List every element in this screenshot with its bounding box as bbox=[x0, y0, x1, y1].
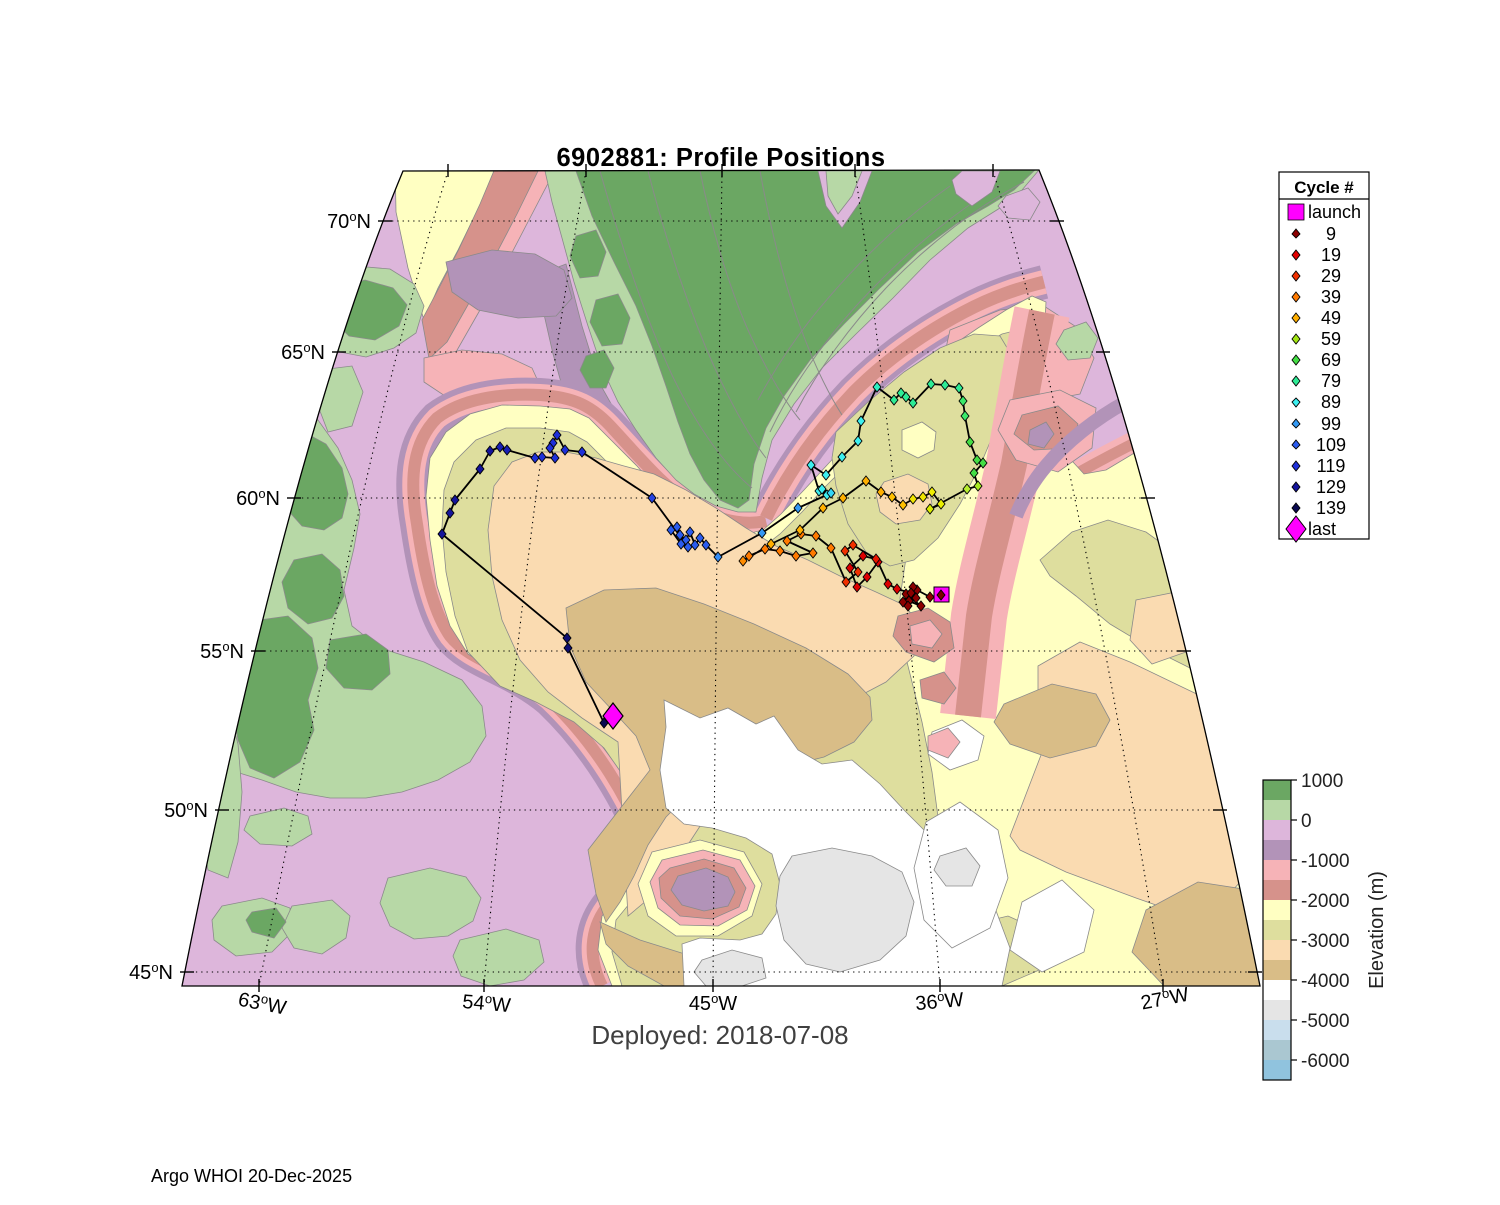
svg-text:69: 69 bbox=[1321, 350, 1341, 370]
svg-text:-6000: -6000 bbox=[1301, 1051, 1350, 1072]
svg-text:-2000: -2000 bbox=[1301, 891, 1350, 912]
svg-text:Deployed: 2018-07-08: Deployed: 2018-07-08 bbox=[591, 1020, 848, 1050]
svg-text:55oN: 55oN bbox=[200, 639, 244, 663]
svg-text:Cycle #: Cycle # bbox=[1294, 178, 1354, 197]
svg-text:-3000: -3000 bbox=[1301, 931, 1350, 952]
svg-text:-1000: -1000 bbox=[1301, 851, 1350, 872]
svg-text:89: 89 bbox=[1321, 392, 1341, 412]
svg-text:70oN: 70oN bbox=[327, 209, 371, 233]
svg-text:59: 59 bbox=[1321, 329, 1341, 349]
svg-text:139: 139 bbox=[1316, 498, 1346, 518]
svg-text:49: 49 bbox=[1321, 308, 1341, 328]
svg-text:Argo WHOI 20-Dec-2025: Argo WHOI 20-Dec-2025 bbox=[151, 1166, 352, 1186]
svg-text:129: 129 bbox=[1316, 477, 1346, 497]
svg-text:9: 9 bbox=[1326, 224, 1336, 244]
svg-text:79: 79 bbox=[1321, 371, 1341, 391]
svg-text:1000: 1000 bbox=[1301, 771, 1343, 792]
svg-text:29: 29 bbox=[1321, 266, 1341, 286]
svg-text:last: last bbox=[1308, 519, 1336, 539]
svg-text:45oN: 45oN bbox=[129, 960, 173, 984]
svg-text:39: 39 bbox=[1321, 287, 1341, 307]
svg-text:Elevation (m): Elevation (m) bbox=[1366, 871, 1388, 989]
svg-text:109: 109 bbox=[1316, 435, 1346, 455]
svg-text:119: 119 bbox=[1317, 456, 1346, 476]
svg-text:0: 0 bbox=[1301, 811, 1312, 832]
svg-text:60oN: 60oN bbox=[236, 486, 280, 510]
svg-text:-4000: -4000 bbox=[1301, 971, 1350, 992]
svg-text:99: 99 bbox=[1321, 414, 1341, 434]
svg-text:launch: launch bbox=[1308, 202, 1361, 222]
svg-text:65oN: 65oN bbox=[281, 340, 325, 364]
svg-text:50oN: 50oN bbox=[164, 798, 208, 822]
svg-text:-5000: -5000 bbox=[1301, 1011, 1350, 1032]
svg-text:6902881: Profile Positions: 6902881: Profile Positions bbox=[556, 144, 885, 172]
svg-text:19: 19 bbox=[1321, 245, 1341, 265]
